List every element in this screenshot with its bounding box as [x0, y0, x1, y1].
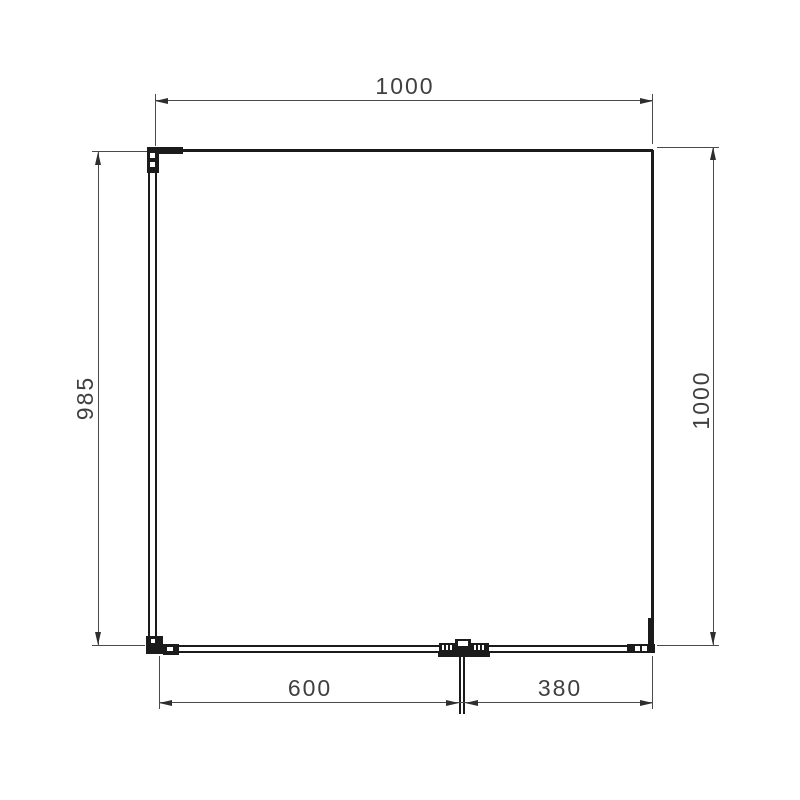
dim-bottom-line [159, 702, 653, 703]
panel-left-edge-outer [148, 150, 150, 650]
dim-top-ext-left [155, 94, 156, 146]
dim-bottom-arrow-center-right [465, 700, 478, 706]
dim-bottom-left-label: 600 [270, 676, 350, 700]
dim-top-label: 1000 [360, 74, 450, 98]
dim-right-ext-top [657, 147, 719, 148]
dim-top-ext-right [652, 94, 653, 144]
dim-right-ext-bottom [657, 645, 719, 646]
dim-left-ext-top [92, 151, 147, 152]
technical-drawing-canvas: 1000 985 1000 600 380 [0, 0, 800, 800]
dim-left-arrow-down [95, 632, 101, 645]
dim-left-arrow-up [95, 152, 101, 165]
dim-left-ext-bottom [92, 645, 145, 646]
dim-bottom-ext-left [159, 656, 160, 709]
panel-bottom-edge-lower [148, 651, 654, 653]
support-rod-left-line [459, 657, 461, 714]
panel-top-edge [155, 149, 653, 152]
dim-left-line [98, 152, 99, 645]
panel-bottom-edge-upper [148, 645, 654, 647]
dim-right-label: 1000 [689, 355, 713, 445]
support-rod-right-line [463, 657, 465, 714]
dim-bottom-arrow-far-left [159, 700, 172, 706]
dim-left-label: 985 [73, 358, 97, 438]
panel-left-edge-inner [155, 150, 157, 650]
dim-top-line [155, 100, 653, 101]
dim-right-arrow-up [710, 147, 716, 160]
panel-right-edge [651, 150, 654, 652]
dim-top-arrow-left [155, 98, 168, 104]
dim-bottom-arrow-center-left [446, 700, 459, 706]
dim-right-arrow-down [710, 632, 716, 645]
dim-bottom-ext-right [652, 656, 653, 709]
dim-bottom-right-label: 380 [520, 676, 600, 700]
